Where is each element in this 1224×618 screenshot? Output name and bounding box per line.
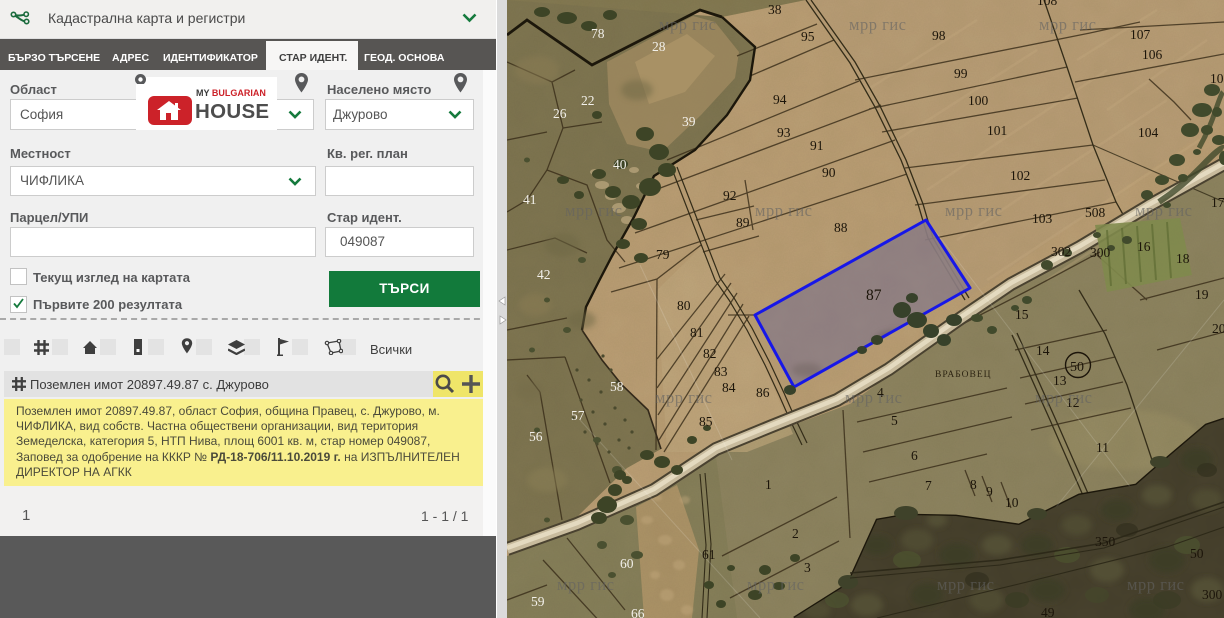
svg-text:89: 89: [736, 215, 750, 230]
svg-text:26: 26: [553, 106, 567, 121]
svg-text:19: 19: [1195, 287, 1209, 302]
svg-text:мрр гис: мрр гис: [747, 575, 805, 594]
svg-text:11: 11: [1096, 440, 1109, 455]
svg-text:82: 82: [703, 346, 717, 361]
svg-text:2: 2: [792, 526, 799, 541]
svg-text:83: 83: [714, 364, 728, 379]
svg-text:мрр гис: мрр гис: [659, 15, 717, 34]
svg-text:350: 350: [1095, 534, 1116, 549]
svg-text:93: 93: [777, 125, 791, 140]
svg-text:78: 78: [591, 26, 605, 41]
svg-text:101: 101: [987, 123, 1007, 138]
svg-text:мрр гис: мрр гис: [655, 388, 713, 407]
svg-text:мрр гис: мрр гис: [937, 575, 995, 594]
svg-text:1: 1: [765, 477, 772, 492]
svg-text:60: 60: [620, 556, 634, 571]
svg-text:мрр гис: мрр гис: [945, 201, 1003, 220]
svg-text:22: 22: [581, 93, 595, 108]
svg-text:98: 98: [932, 28, 946, 43]
svg-text:86: 86: [756, 385, 770, 400]
svg-text:42: 42: [537, 267, 551, 282]
svg-text:94: 94: [773, 92, 787, 107]
svg-text:99: 99: [954, 66, 968, 81]
svg-text:17: 17: [1211, 195, 1224, 210]
svg-text:10: 10: [1005, 495, 1019, 510]
svg-text:57: 57: [571, 408, 585, 423]
svg-text:61: 61: [702, 547, 716, 562]
svg-text:мрр гис: мрр гис: [845, 388, 903, 407]
svg-text:58: 58: [610, 379, 624, 394]
svg-text:59: 59: [531, 594, 545, 609]
svg-text:14: 14: [1036, 343, 1050, 358]
svg-text:80: 80: [677, 298, 691, 313]
svg-text:79: 79: [656, 247, 670, 262]
svg-text:107: 107: [1130, 27, 1151, 42]
svg-text:50: 50: [1070, 360, 1084, 375]
svg-text:300: 300: [1202, 587, 1223, 602]
svg-text:10: 10: [1210, 71, 1224, 86]
svg-text:мрр гис: мрр гис: [557, 575, 615, 594]
svg-text:66: 66: [631, 606, 645, 618]
svg-text:100: 100: [968, 93, 989, 108]
svg-text:108: 108: [1037, 0, 1058, 8]
svg-text:41: 41: [523, 192, 537, 207]
svg-text:90: 90: [822, 165, 836, 180]
svg-text:50: 50: [1190, 546, 1204, 561]
svg-text:87: 87: [866, 287, 882, 304]
svg-text:мрр гис: мрр гис: [849, 15, 907, 34]
svg-text:8: 8: [970, 477, 977, 492]
svg-text:103: 103: [1032, 211, 1053, 226]
svg-text:28: 28: [652, 39, 666, 54]
svg-text:мрр гис: мрр гис: [755, 201, 813, 220]
svg-text:мрр гис: мрр гис: [1135, 201, 1193, 220]
svg-text:81: 81: [690, 325, 704, 340]
svg-text:102: 102: [1010, 168, 1030, 183]
svg-text:49: 49: [1041, 605, 1055, 618]
svg-text:18: 18: [1176, 251, 1190, 266]
svg-text:7: 7: [925, 478, 932, 493]
svg-text:302: 302: [1051, 244, 1071, 259]
svg-text:300: 300: [1090, 245, 1111, 260]
svg-text:84: 84: [722, 380, 736, 395]
svg-text:ВРАБОВЕЦ: ВРАБОВЕЦ: [935, 370, 992, 380]
svg-text:88: 88: [834, 220, 848, 235]
svg-text:мрр гис: мрр гис: [1039, 15, 1097, 34]
svg-text:5: 5: [891, 413, 898, 428]
svg-text:15: 15: [1015, 307, 1029, 322]
svg-text:9: 9: [986, 484, 993, 499]
svg-text:91: 91: [810, 138, 824, 153]
svg-text:38: 38: [768, 2, 782, 17]
svg-text:92: 92: [723, 188, 737, 203]
svg-text:106: 106: [1142, 47, 1163, 62]
svg-text:20: 20: [1212, 321, 1224, 336]
svg-text:39: 39: [682, 114, 696, 129]
svg-text:16: 16: [1137, 239, 1151, 254]
svg-text:40: 40: [613, 157, 627, 172]
svg-text:мрр гис: мрр гис: [1127, 575, 1185, 594]
svg-text:6: 6: [911, 448, 918, 463]
svg-text:13: 13: [1053, 373, 1067, 388]
svg-text:мрр гис: мрр гис: [1035, 388, 1093, 407]
svg-text:85: 85: [699, 414, 713, 429]
svg-text:95: 95: [801, 29, 815, 44]
svg-text:56: 56: [529, 429, 543, 444]
svg-text:3: 3: [804, 560, 811, 575]
svg-text:мрр гис: мрр гис: [565, 201, 623, 220]
svg-text:104: 104: [1138, 125, 1159, 140]
svg-text:508: 508: [1085, 205, 1106, 220]
